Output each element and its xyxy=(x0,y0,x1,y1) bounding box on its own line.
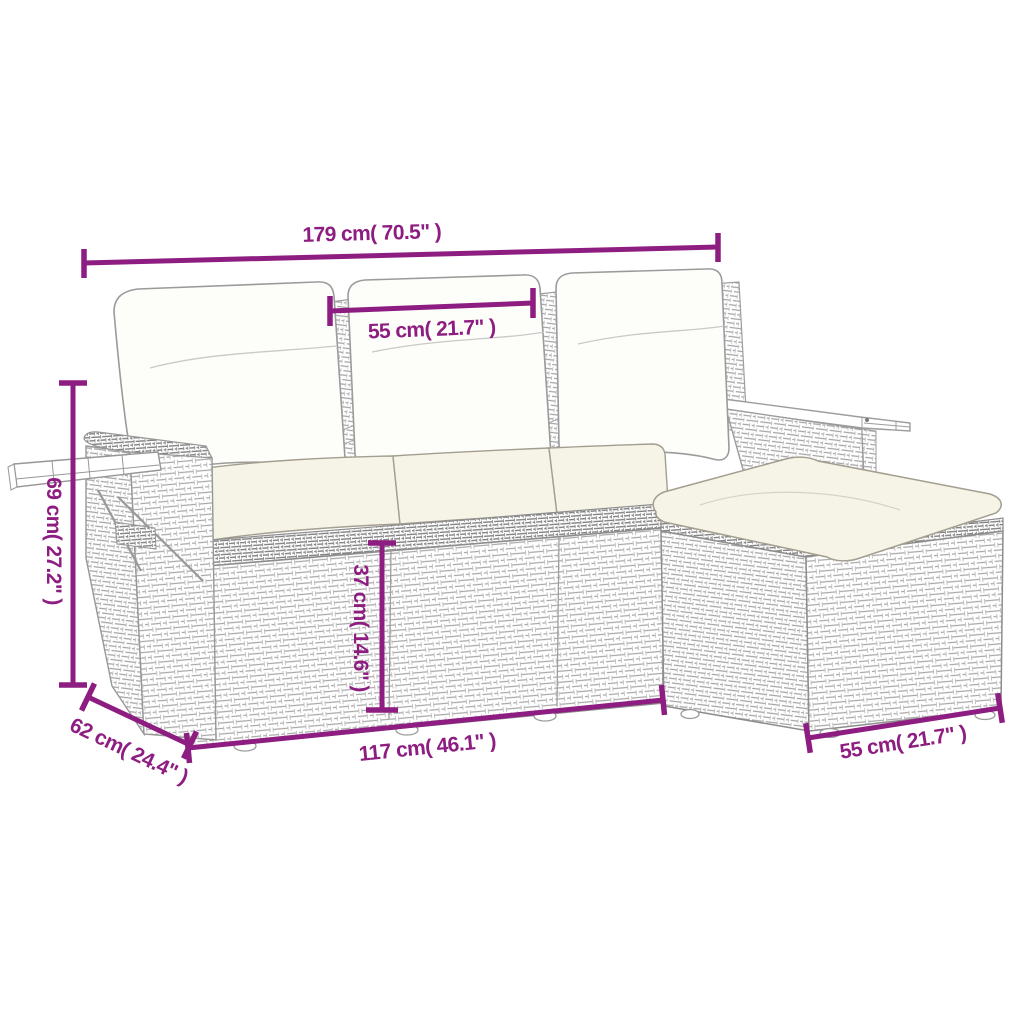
back-pillow-right xyxy=(556,269,729,460)
label-total-height: 69 cm( 27.2" ) xyxy=(42,477,65,605)
label-seat-height: 37 cm( 14.6" ) xyxy=(349,564,372,692)
ottoman-front-face xyxy=(806,531,1003,731)
left-armrest xyxy=(8,432,216,740)
sofa-base xyxy=(187,528,663,751)
left-armrest-front-face xyxy=(130,447,216,740)
label-ottoman-width: 55 cm( 21.7" ) xyxy=(838,721,968,763)
product-dimension-diagram: 179 cm( 70.5" ) 55 cm( 21.7" ) 69 cm( 27… xyxy=(0,0,1024,1024)
seat-cushion-right xyxy=(549,444,668,514)
sofa-dimension-illustration: 179 cm( 70.5" ) 55 cm( 21.7" ) 69 cm( 27… xyxy=(0,0,1024,1024)
seat-cushion-middle xyxy=(393,448,557,524)
label-total-width: 179 cm( 70.5" ) xyxy=(302,220,441,247)
ottoman-left-face xyxy=(661,531,809,731)
label-sofa-length: 117 cm( 46.1" ) xyxy=(358,729,497,766)
ottoman xyxy=(653,457,1003,737)
back-pillows xyxy=(114,269,729,470)
